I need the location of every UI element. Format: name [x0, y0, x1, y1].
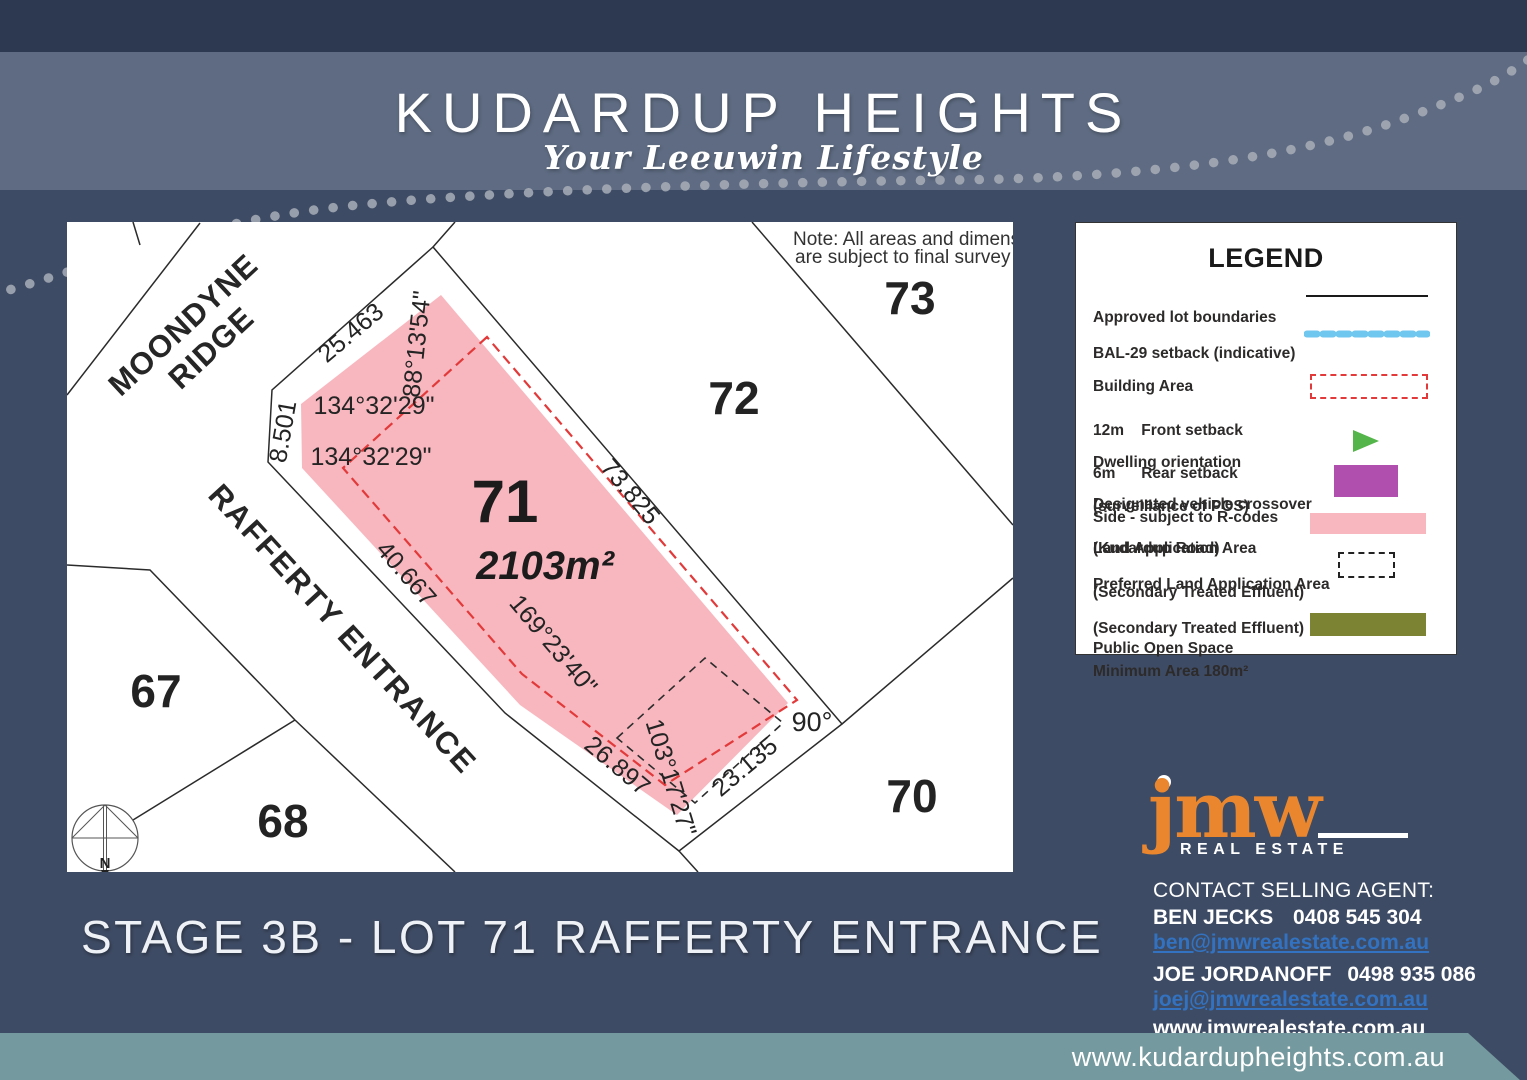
dim-134-upper: 134°32'29" [314, 392, 435, 420]
legend-panel: LEGEND Approved lot boundaries BAL-29 se… [1075, 222, 1457, 655]
jmw-logo: jmw [1148, 772, 1320, 850]
brochure-page: KUDARDUP HEIGHTS Your Leeuwin Lifestyle [0, 0, 1527, 1080]
dim-90: 90° [792, 707, 833, 737]
contact-heading: CONTACT SELLING AGENT: [1153, 878, 1476, 903]
lot-71-area: 2103m² [475, 544, 616, 588]
survey-plan-panel: Note: All areas and dimensions are subje… [67, 222, 1013, 872]
purple-rect-icon [1334, 465, 1398, 497]
survey-plan-drawing: Note: All areas and dimensions are subje… [67, 222, 1013, 872]
north-arrow-icon [101, 870, 109, 872]
dim-134-lower: 134°32'29" [311, 443, 432, 471]
jmw-logo-underline [1318, 833, 1408, 838]
red-dashed-rect-icon [1310, 374, 1428, 399]
lot-67-label: 67 [130, 665, 181, 717]
dim-8-501: 8.501 [264, 398, 302, 464]
lot-70-label: 70 [886, 770, 937, 822]
footer-band: www.kudardupheights.com.au [0, 1033, 1527, 1080]
survey-note-line2: are subject to final survey [795, 247, 1011, 268]
agent1-phone: 0408 545 304 [1293, 906, 1421, 929]
jmw-logo-subtext: REAL ESTATE [1180, 841, 1349, 859]
legend-row-public-open-space: Public Open Space [1093, 613, 1233, 657]
agent1-line: BEN JECKS 0408 545 304 [1153, 905, 1476, 930]
legend-title: LEGEND [1076, 243, 1456, 274]
solid-line-icon [1306, 295, 1428, 297]
agent2-line: JOE JORDANOFF 0498 935 086 [1153, 962, 1476, 987]
olive-rect-icon [1310, 613, 1426, 636]
footer-corner-cut [1468, 1033, 1527, 1080]
lot-72-label: 72 [708, 372, 759, 424]
pink-rect-icon [1310, 513, 1426, 534]
stage-title: STAGE 3B - LOT 71 RAFFERTY ENTRANCE [81, 910, 1103, 964]
footer-website: www.kudardupheights.com.au [1072, 1042, 1445, 1073]
black-dashed-rect-icon [1338, 552, 1395, 578]
agent1-name: BEN JECKS [1153, 906, 1273, 929]
north-label: N [100, 855, 111, 872]
north-compass-icon: N [72, 805, 138, 872]
agent2-email-link[interactable]: joej@jmwrealestate.com.au [1153, 988, 1428, 1011]
green-triangle-icon [1353, 430, 1379, 452]
lot-73-label: 73 [884, 272, 935, 324]
agent1-email-link[interactable]: ben@jmwrealestate.com.au [1153, 931, 1429, 954]
lot-71-number: 71 [472, 468, 539, 535]
street-moondyne-ridge: MOONDYNE RIDGE [102, 240, 297, 428]
agent2-name: JOE JORDANOFF [1153, 963, 1332, 986]
agent2-phone: 0498 935 086 [1347, 963, 1475, 986]
blue-dashed-line-icon [1304, 330, 1430, 338]
contact-block: CONTACT SELLING AGENT: BEN JECKS 0408 54… [1153, 878, 1476, 1041]
lot-68-label: 68 [257, 795, 308, 847]
